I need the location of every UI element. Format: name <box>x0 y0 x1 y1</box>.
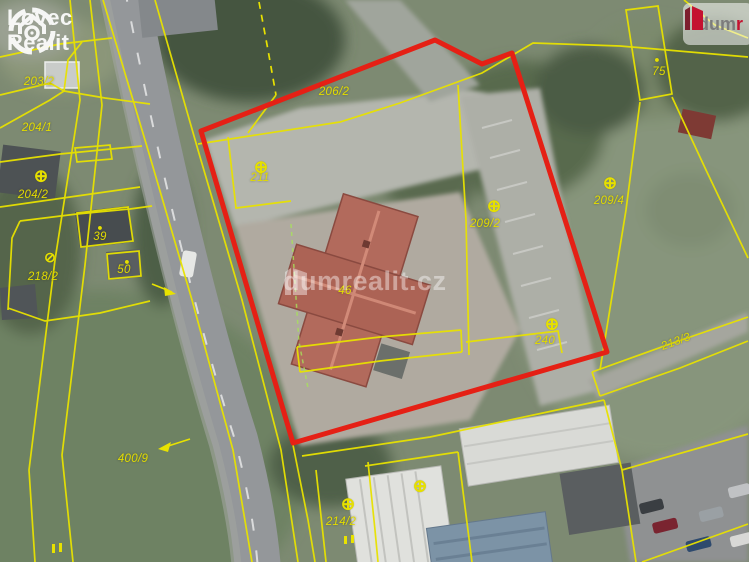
portal-logo: dumr <box>683 3 749 45</box>
aerial-map: 203/2204/1204/2218/23950211206/2209/2209… <box>0 0 749 562</box>
watermark-house-icon <box>283 266 309 296</box>
portal-house-icon <box>683 3 705 31</box>
agency-logo: Lovec Realit <box>7 6 73 55</box>
target-house-icon <box>7 6 57 56</box>
property-boundary <box>201 40 607 443</box>
portal-logo-text-red: r <box>736 14 743 34</box>
map-marks <box>52 284 354 553</box>
watermark: dumrealit.cz <box>283 266 447 297</box>
dashed-boundary-line <box>259 2 276 95</box>
